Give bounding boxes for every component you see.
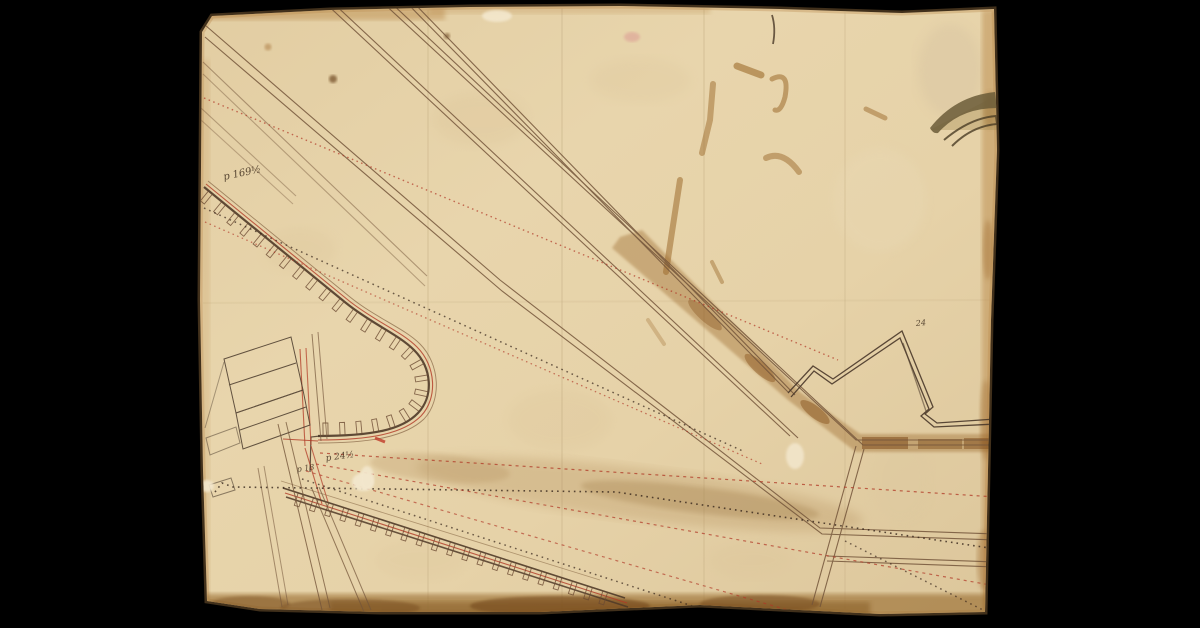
scanned-drawing-viewport: p 169½ p 24½ p 18 24	[0, 0, 1200, 628]
pink-smudge	[624, 32, 640, 42]
historical-plan-scan: p 169½ p 24½ p 18 24	[0, 0, 1200, 628]
paper-sheet	[200, 6, 997, 614]
paper-outline	[200, 6, 997, 614]
annotation-pencil-24: 24	[914, 318, 926, 328]
